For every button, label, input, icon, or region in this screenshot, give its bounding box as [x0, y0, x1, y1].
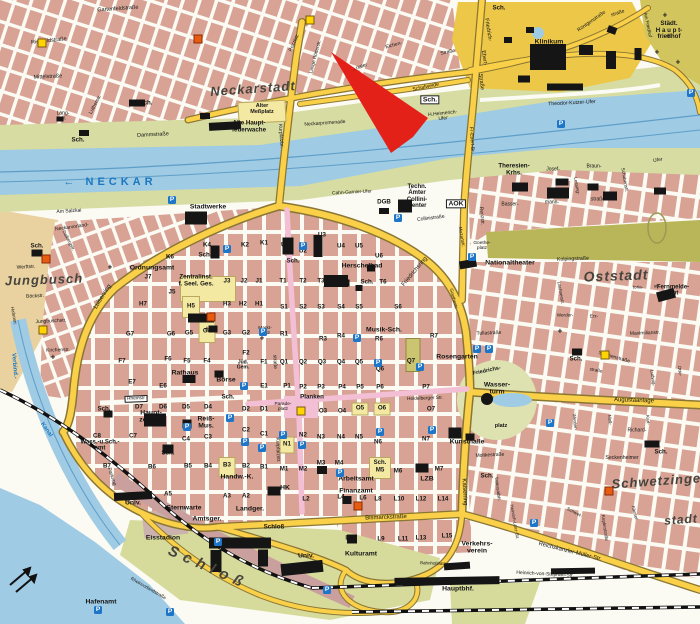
- wasserturm-tower: [481, 393, 493, 405]
- city-map: +++++++++ GartenfeldstraßeRiedfeldstraße…: [0, 0, 700, 624]
- map-base-graphics: [0, 0, 700, 624]
- friedrichsplatz-pond: [492, 393, 532, 407]
- station-green-wedge: [450, 582, 540, 624]
- klinikum-pond: [532, 27, 544, 39]
